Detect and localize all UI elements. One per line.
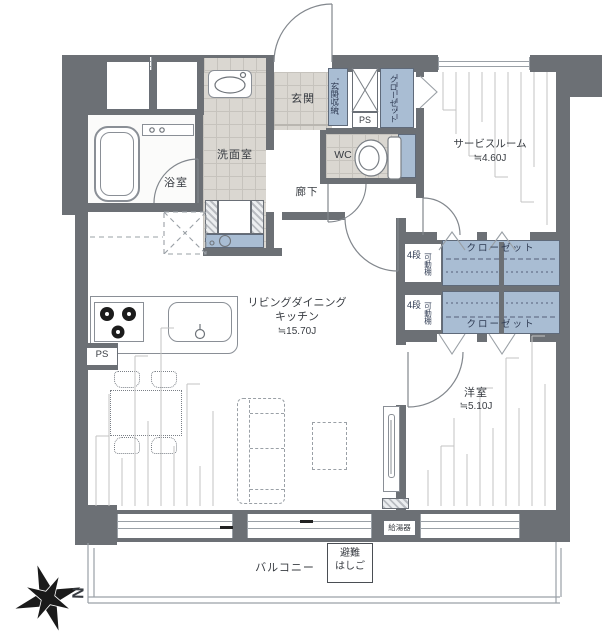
washer-side-panel bbox=[251, 200, 264, 234]
window bbox=[438, 57, 530, 70]
wall-segment bbox=[416, 108, 424, 198]
wall-segment bbox=[406, 334, 437, 342]
wall-segment bbox=[62, 55, 88, 215]
water-heater-unit bbox=[382, 498, 409, 509]
sofa-back-line bbox=[249, 400, 250, 502]
wc-vanity bbox=[398, 134, 416, 178]
entrance-storage-label: 玄関収納 bbox=[330, 72, 338, 124]
wall-segment bbox=[203, 248, 282, 256]
ldk-size: ≒15.70J bbox=[237, 325, 357, 338]
water-heater-label: 給湯器 bbox=[383, 523, 416, 533]
wall-segment bbox=[406, 232, 437, 240]
wc-label: WC bbox=[328, 149, 358, 163]
wall-segment bbox=[266, 55, 274, 150]
bathroom-label: 浴室 bbox=[152, 176, 200, 190]
sofa-seat-line bbox=[250, 489, 284, 490]
upper-shelf-steps-label: 4段 bbox=[405, 251, 423, 261]
window-handle bbox=[220, 526, 233, 529]
kitchen-pipe-space-label: PS bbox=[86, 349, 118, 361]
wall-segment bbox=[88, 203, 203, 212]
shaft-box bbox=[106, 55, 150, 110]
tv bbox=[388, 414, 395, 478]
lower-shelf-label: 可動棚 bbox=[424, 295, 432, 331]
window bbox=[247, 514, 372, 538]
hall-closet-label: クローゼット bbox=[389, 71, 397, 127]
dining-chair bbox=[114, 371, 140, 388]
balcony-label: バルコニー bbox=[240, 561, 330, 575]
dining-chair bbox=[151, 437, 177, 454]
western-room-label: 洋室 ≒5.10J bbox=[426, 386, 526, 413]
pipe-space-upper-label: PS bbox=[359, 115, 371, 125]
wall-segment bbox=[530, 232, 556, 240]
wall-segment bbox=[530, 334, 556, 342]
lower-shelf-steps-label: 4段 bbox=[405, 301, 423, 311]
window bbox=[420, 514, 520, 538]
stove bbox=[94, 302, 144, 342]
washer-side-panel bbox=[205, 200, 218, 234]
wall-segment bbox=[195, 112, 203, 211]
service-room-label: サービスルーム ≒4.60J bbox=[430, 138, 550, 165]
washer-pan bbox=[205, 234, 264, 248]
window bbox=[117, 514, 233, 538]
bathtub-inner bbox=[100, 132, 134, 196]
wall-segment bbox=[282, 212, 345, 220]
kitchen-sink bbox=[168, 302, 232, 342]
upper-closet-label: クローゼット bbox=[442, 243, 560, 255]
window-handle bbox=[300, 520, 313, 523]
wall-segment bbox=[320, 130, 326, 184]
dining-chair bbox=[151, 371, 177, 388]
entrance-step-line bbox=[274, 124, 332, 126]
entrance-label: 玄関 bbox=[274, 92, 332, 106]
lower-closet-label: クローゼット bbox=[442, 319, 560, 331]
sofa-seat-line bbox=[250, 413, 284, 414]
wall-segment bbox=[477, 232, 487, 240]
upper-shelf-label: 可動棚 bbox=[424, 246, 432, 282]
compass-north-label: N bbox=[65, 583, 86, 604]
shaft-box-cap bbox=[106, 55, 150, 62]
washroom-label: 洗面室 bbox=[206, 148, 264, 162]
dining-chair bbox=[114, 437, 140, 454]
pipe-space-label-box: PS bbox=[352, 112, 378, 128]
service-room-size: ≒4.60J bbox=[430, 152, 550, 165]
fridge-space bbox=[90, 212, 206, 254]
dining-table bbox=[110, 390, 182, 436]
wall-segment bbox=[320, 178, 422, 184]
washer-space bbox=[218, 200, 251, 234]
wall-segment bbox=[204, 55, 272, 58]
bath-counter bbox=[142, 124, 194, 136]
washroom-sink bbox=[208, 70, 252, 98]
wall-segment bbox=[530, 55, 556, 72]
hallway-label: 廊下 bbox=[288, 186, 326, 200]
western-room-size: ≒5.10J bbox=[426, 400, 526, 413]
escape-ladder-label: 避難 はしご bbox=[327, 547, 373, 573]
shaft-box-cap bbox=[156, 55, 198, 62]
ldk-label: リビングダイニング キッチン ≒15.70J bbox=[237, 296, 357, 338]
wall-segment bbox=[477, 334, 487, 342]
sofa-seat-line bbox=[250, 448, 284, 449]
wall-segment bbox=[556, 55, 602, 97]
floor-plan: PS bbox=[0, 0, 615, 640]
shaft-box bbox=[156, 55, 198, 110]
wall-segment bbox=[416, 55, 424, 77]
rug bbox=[312, 422, 347, 470]
pipe-space-shaft bbox=[352, 68, 378, 112]
